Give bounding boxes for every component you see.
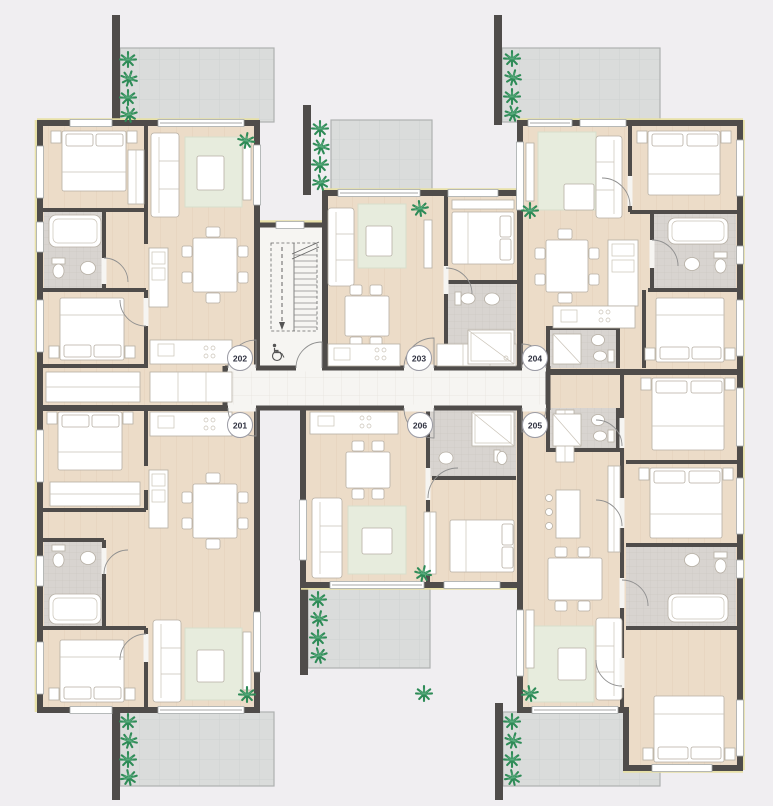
- tv-sideboard: [243, 632, 251, 690]
- badge-204-label: 204: [528, 354, 542, 364]
- badge-203: 203: [407, 346, 432, 371]
- coffee-table: [558, 648, 586, 680]
- coffee-table: [197, 650, 224, 682]
- floor-plan-page: 202 201 203 206 204 205: [0, 0, 773, 806]
- corridor: [225, 366, 548, 410]
- coffee-table: [564, 184, 594, 210]
- tv-sideboard: [243, 142, 251, 200]
- badge-206-label: 206: [413, 421, 427, 431]
- badge-201: 201: [228, 413, 253, 438]
- terrace-top-left: [112, 15, 274, 127]
- badge-205: 205: [523, 413, 548, 438]
- sofa: [153, 620, 181, 702]
- badge-202-label: 202: [233, 354, 247, 364]
- tv-sideboard: [526, 143, 534, 201]
- bed: [641, 378, 735, 450]
- sofa: [312, 498, 342, 578]
- bed: [645, 298, 735, 362]
- coffee-table: [366, 226, 392, 256]
- sofa: [151, 133, 179, 217]
- kitchen: [310, 412, 398, 434]
- sofa: [328, 208, 354, 286]
- bed: [637, 131, 731, 195]
- terrace-top-right: [494, 15, 660, 125]
- badge-201-label: 201: [233, 421, 247, 431]
- bed: [450, 520, 514, 572]
- terrace-bottom-left: [112, 710, 274, 800]
- bed: [643, 696, 735, 762]
- badge-203-label: 203: [412, 354, 426, 364]
- tv-sideboard: [526, 610, 534, 668]
- bed: [47, 412, 133, 470]
- badge-205-label: 205: [528, 421, 542, 431]
- badge-204: 204: [523, 346, 548, 371]
- coffee-table: [362, 528, 392, 554]
- floor-plan-canvas: 202 201 203 206 204 205: [0, 0, 773, 806]
- bed: [639, 468, 733, 538]
- bed: [51, 131, 137, 191]
- tv-sideboard: [424, 220, 432, 268]
- sofa: [596, 136, 622, 218]
- bed: [49, 298, 135, 360]
- coffee-table: [197, 156, 224, 190]
- badge-206: 206: [408, 413, 433, 438]
- badge-202: 202: [228, 346, 253, 371]
- sofa: [596, 618, 622, 700]
